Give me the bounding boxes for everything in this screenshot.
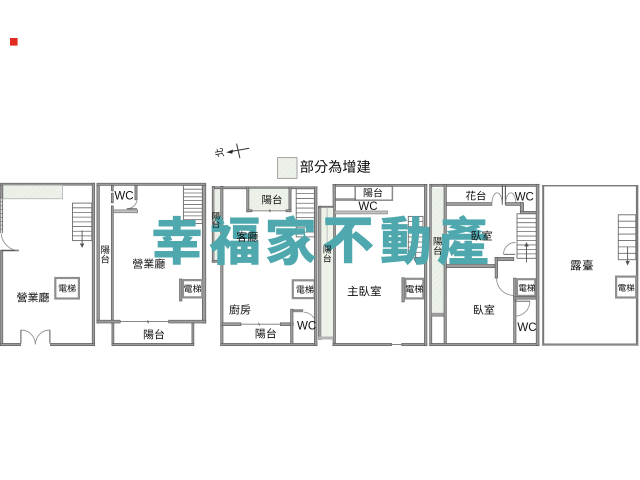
svg-text:WC: WC: [517, 322, 536, 334]
svg-text:WC: WC: [297, 321, 316, 333]
svg-text:WC: WC: [515, 191, 534, 203]
svg-text:WC: WC: [114, 191, 133, 203]
svg-text:WC: WC: [358, 201, 377, 213]
